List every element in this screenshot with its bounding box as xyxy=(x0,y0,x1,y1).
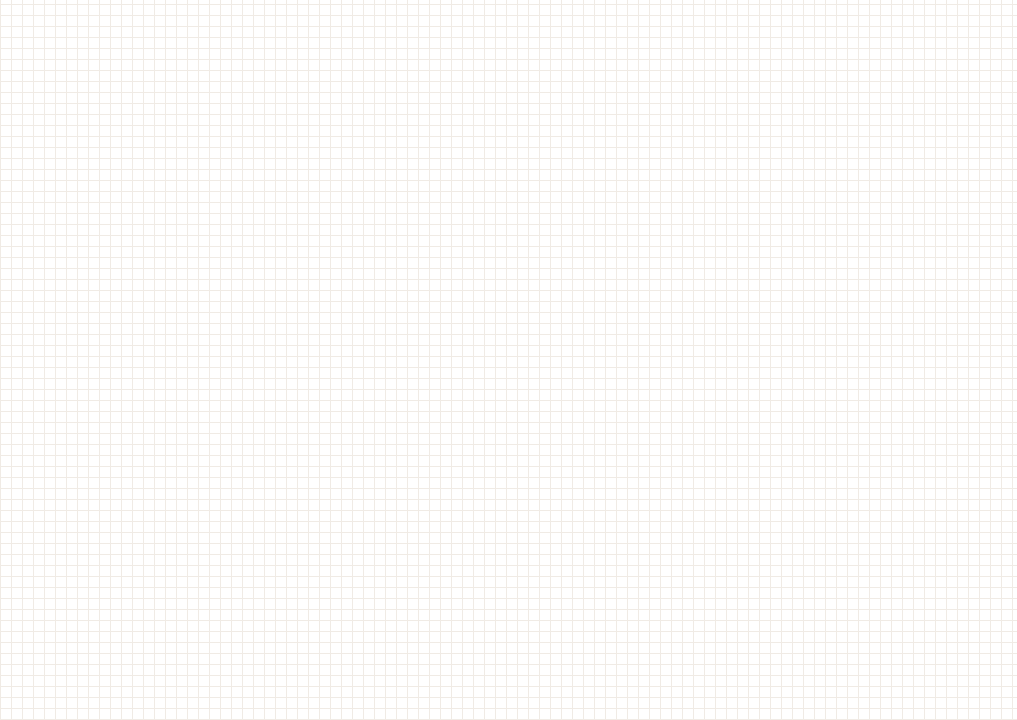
schematic-canvas[interactable] xyxy=(0,0,1017,720)
schematic-sheet xyxy=(0,0,1017,720)
